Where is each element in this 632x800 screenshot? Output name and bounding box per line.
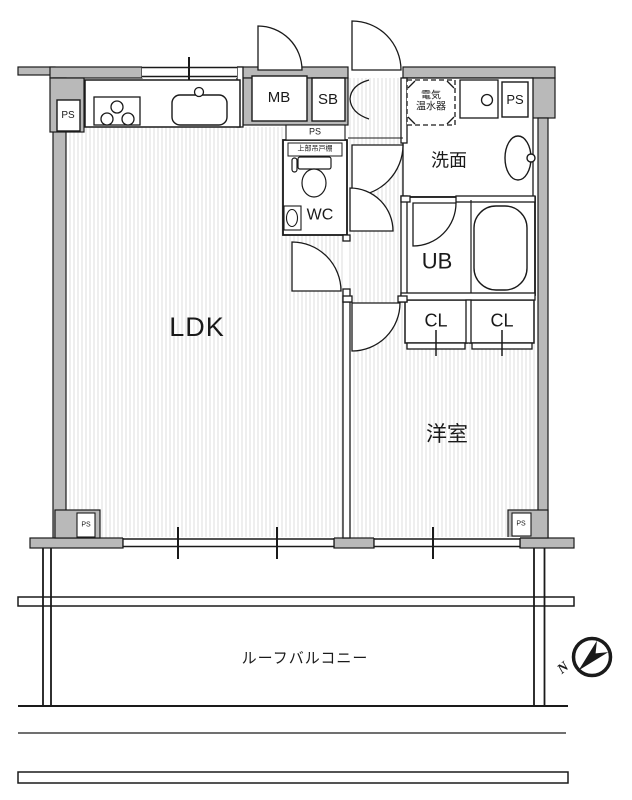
kitchen-counter xyxy=(85,80,240,127)
room-label-toilet: WC xyxy=(307,208,334,225)
label-pipe-space-bottom-right: PS xyxy=(516,520,525,527)
label-pipe-space-top-right: PS xyxy=(506,93,523,107)
room-label-ldk: LDK xyxy=(169,313,225,341)
kitchen-sink-icon xyxy=(172,95,227,125)
label-shoe-box: SB xyxy=(318,92,338,108)
label-upper-cabinet: 上部吊戸棚 xyxy=(298,145,333,152)
room-label-closet-right: CL xyxy=(490,312,513,331)
label-pipe-space-top-left: PS xyxy=(61,111,74,122)
label-pipe-space-bottom-left: PS xyxy=(81,521,90,528)
room-label-closet-left: CL xyxy=(424,312,447,331)
floor-plan-page: LDK 洋室 洗面 UB CL CL WC MB SB PS PS PS PS … xyxy=(0,0,632,800)
washer-pan-icon xyxy=(460,80,498,118)
bathtub-icon xyxy=(474,206,527,290)
label-pipe-space-above-wc: PS xyxy=(309,127,321,136)
hand-basin-icon xyxy=(284,206,301,230)
compass-icon xyxy=(574,639,611,676)
balcony-railing xyxy=(18,597,574,606)
label-meter-box: MB xyxy=(268,90,291,106)
label-electric-water-heater: 電気温水器 xyxy=(416,92,446,113)
label-roof-balcony: ルーフバルコニー xyxy=(242,651,369,667)
floor-plan-drawing xyxy=(0,0,632,800)
faucet-icon xyxy=(195,88,204,97)
room-label-washroom: 洗面 xyxy=(431,152,467,171)
room-label-unit-bath: UB xyxy=(422,249,453,272)
room-label-western-room: 洋室 xyxy=(426,424,468,446)
